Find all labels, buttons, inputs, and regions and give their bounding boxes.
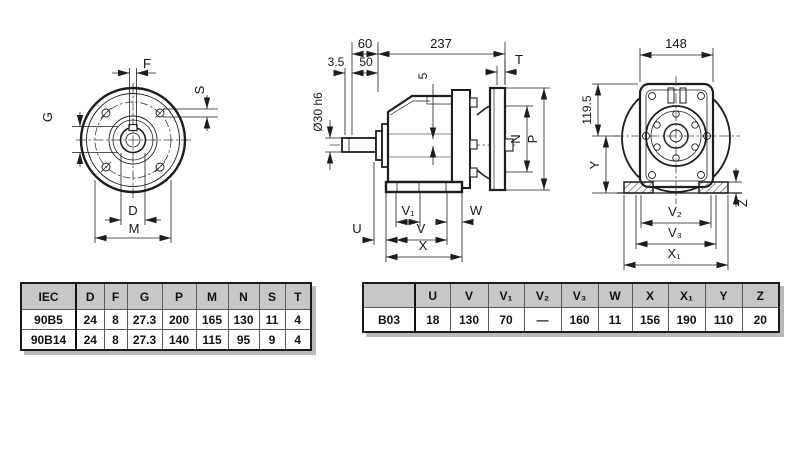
table-cell: 70 bbox=[488, 308, 524, 333]
plate-bolt-top bbox=[470, 98, 477, 107]
keyway-notch bbox=[129, 125, 137, 131]
table-cell: 110 bbox=[705, 308, 742, 333]
iec-header-d: D bbox=[76, 283, 104, 310]
b03-header-z: Z bbox=[742, 283, 779, 308]
neck-top bbox=[477, 106, 490, 115]
technical-drawing: F S G D M bbox=[0, 0, 800, 278]
table-cell: 27.3 bbox=[127, 310, 162, 330]
label-5: 5 bbox=[416, 72, 430, 79]
label-v2: V₂ bbox=[668, 204, 682, 219]
label-x1: X₁ bbox=[667, 246, 681, 261]
table-cell: 27.3 bbox=[127, 330, 162, 351]
label-g: G bbox=[40, 112, 55, 122]
iec-header-s: S bbox=[259, 283, 285, 310]
mounting-foot-left bbox=[624, 182, 653, 193]
iec-dimension-table: IEC D F G P M N S T 90B5 24 8 27.3 200 1… bbox=[20, 282, 312, 351]
label-s: S bbox=[192, 85, 207, 94]
dimension-g: G bbox=[40, 112, 118, 167]
label-z: Z bbox=[735, 199, 750, 207]
iec-header-g: G bbox=[127, 283, 162, 310]
table-cell: 24 bbox=[76, 310, 104, 330]
table-cell: 190 bbox=[668, 308, 705, 333]
table-cell: 20 bbox=[742, 308, 779, 333]
table-cell: 140 bbox=[162, 330, 196, 351]
plate-bolt-bottom bbox=[470, 168, 477, 177]
label-237: 237 bbox=[430, 36, 452, 51]
table-cell: 11 bbox=[598, 308, 632, 333]
iec-header-n: N bbox=[228, 283, 259, 310]
dimension-bottom-rear: V₂ V₃ X₁ bbox=[624, 195, 728, 270]
plate-bolt-mid bbox=[470, 140, 477, 149]
b03-header-x: X bbox=[632, 283, 668, 308]
table-cell: 9 bbox=[259, 330, 285, 351]
b03-header-v: V bbox=[450, 283, 488, 308]
dimension-3-5-50: 3.5 50 bbox=[328, 55, 378, 73]
table-cell: — bbox=[524, 308, 561, 333]
label-f: F bbox=[143, 56, 151, 71]
iec-table-row-90b14: 90B14 24 8 27.3 140 115 95 9 4 bbox=[21, 330, 311, 351]
table-cell: 115 bbox=[196, 330, 228, 351]
label-v1: V₁ bbox=[401, 203, 415, 218]
input-shaft bbox=[342, 138, 376, 152]
dimension-n-p: N P bbox=[505, 88, 550, 190]
mid-flange-plate bbox=[452, 90, 470, 188]
dimension-148: 148 bbox=[640, 36, 713, 82]
label-3-5: 3.5 bbox=[328, 55, 345, 69]
label-u: U bbox=[352, 221, 361, 236]
b03-header-u: U bbox=[415, 283, 450, 308]
table-cell: 4 bbox=[285, 330, 311, 351]
label-p: P bbox=[525, 135, 540, 144]
label-119-5: 119.5 bbox=[580, 95, 594, 124]
table-cell: 4 bbox=[285, 310, 311, 330]
iec-header-p: P bbox=[162, 283, 196, 310]
label-shaft-diameter: Ø30 h6 bbox=[311, 92, 325, 132]
b03-dimension-table: U V V₁ V₂ V₃ W X X₁ Y Z B03 18 130 70 — … bbox=[362, 282, 780, 333]
label-60: 60 bbox=[358, 36, 372, 51]
b03-header-w: W bbox=[598, 283, 632, 308]
row-label: 90B14 bbox=[21, 330, 76, 351]
table-cell: 130 bbox=[228, 310, 259, 330]
label-d: D bbox=[128, 203, 137, 218]
table-cell: 156 bbox=[632, 308, 668, 333]
b03-header-blank bbox=[363, 283, 415, 308]
label-m: M bbox=[129, 221, 140, 236]
b03-table-row: B03 18 130 70 — 160 11 156 190 110 20 bbox=[363, 308, 779, 333]
b03-header-v1: V₁ bbox=[488, 283, 524, 308]
label-148: 148 bbox=[665, 36, 687, 51]
gearbox-datasheet-page: F S G D M bbox=[0, 0, 800, 450]
table-cell: 160 bbox=[561, 308, 598, 333]
label-x: X bbox=[419, 238, 428, 253]
label-t: T bbox=[515, 52, 523, 67]
b03-header-x1: X₁ bbox=[668, 283, 705, 308]
label-y: Y bbox=[587, 160, 602, 169]
b03-table-header-row: U V V₁ V₂ V₃ W X X₁ Y Z bbox=[363, 283, 779, 308]
table-cell: 165 bbox=[196, 310, 228, 330]
dimension-shaft-diameter: Ø30 h6 bbox=[311, 92, 342, 170]
row-label: B03 bbox=[363, 308, 415, 333]
table-cell: 130 bbox=[450, 308, 488, 333]
iec-header-iec: IEC bbox=[21, 283, 76, 310]
label-v3: V₃ bbox=[668, 225, 682, 240]
table-cell: 8 bbox=[104, 330, 127, 351]
table-cell: 95 bbox=[228, 330, 259, 351]
label-w: W bbox=[470, 203, 483, 218]
b03-header-v2: V₂ bbox=[524, 283, 561, 308]
iec-table-header-row: IEC D F G P M N S T bbox=[21, 283, 311, 310]
dimension-t: T bbox=[486, 52, 523, 85]
dimension-s: S bbox=[163, 85, 218, 131]
table-cell: 8 bbox=[104, 310, 127, 330]
gearbox-body bbox=[388, 96, 452, 182]
label-v: V bbox=[417, 221, 426, 236]
table-cell: 18 bbox=[415, 308, 450, 333]
iec-header-t: T bbox=[285, 283, 311, 310]
label-n: N bbox=[508, 134, 523, 143]
iec-header-m: M bbox=[196, 283, 228, 310]
dimension-z: Z bbox=[728, 168, 750, 207]
mounting-foot-right bbox=[699, 182, 728, 193]
b03-header-y: Y bbox=[705, 283, 742, 308]
neck-bottom bbox=[477, 170, 490, 179]
iec-header-f: F bbox=[104, 283, 127, 310]
b03-header-v3: V₃ bbox=[561, 283, 598, 308]
table-cell: 24 bbox=[76, 330, 104, 351]
side-view: 60 237 3.5 50 5 T bbox=[311, 36, 550, 262]
output-flange bbox=[490, 88, 505, 190]
label-50: 50 bbox=[359, 55, 373, 69]
rear-view: 148 119.5 Y Z V₂ bbox=[580, 36, 750, 270]
front-view: F S G D M bbox=[40, 56, 218, 243]
iec-table-row-90b5: 90B5 24 8 27.3 200 165 130 11 4 bbox=[21, 310, 311, 330]
table-cell: 11 bbox=[259, 310, 285, 330]
table-cell: 200 bbox=[162, 310, 196, 330]
row-label: 90B5 bbox=[21, 310, 76, 330]
